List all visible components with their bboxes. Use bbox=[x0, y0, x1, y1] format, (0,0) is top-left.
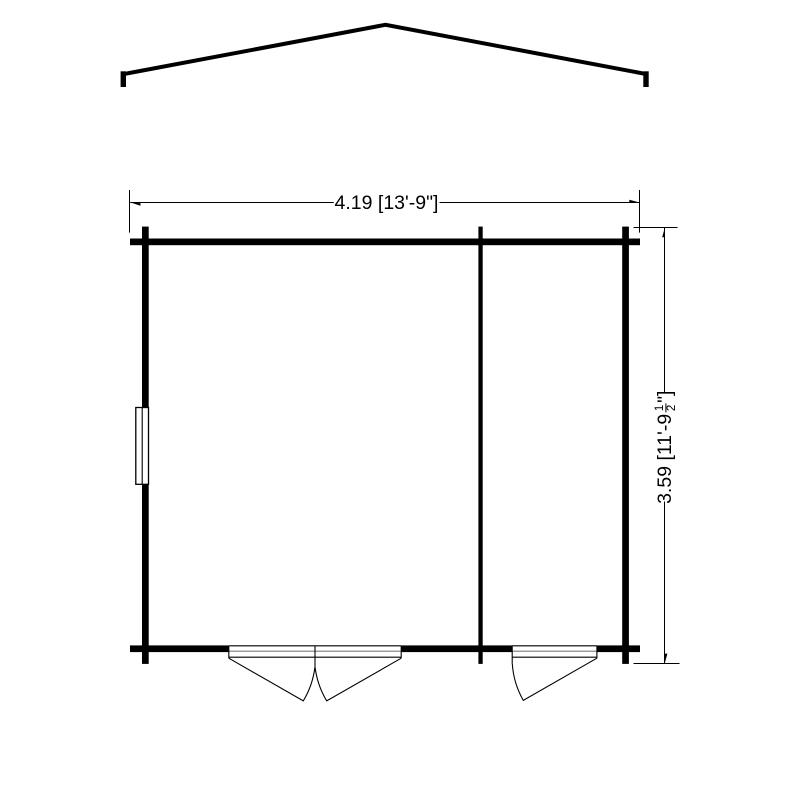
svg-text:1: 1 bbox=[654, 405, 666, 411]
svg-text:2: 2 bbox=[666, 405, 678, 411]
svg-text:"]: "] bbox=[654, 391, 676, 403]
svg-text:3.59 [11'-9: 3.59 [11'-9 bbox=[654, 414, 676, 504]
svg-text:4.19 [13'-9"]: 4.19 [13'-9"] bbox=[335, 192, 439, 214]
